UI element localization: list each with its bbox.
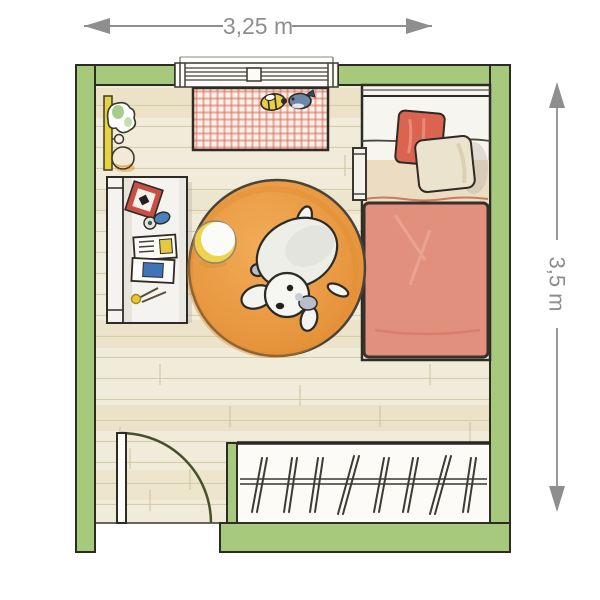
- dog-nose: [276, 303, 284, 309]
- wall-right: [490, 65, 510, 552]
- dog-eye: [287, 285, 293, 291]
- wall-left: [76, 65, 95, 552]
- desk: [107, 177, 192, 323]
- closet: [237, 443, 490, 523]
- window: [175, 57, 338, 87]
- wall-bottom: [220, 523, 510, 552]
- right-dimension: 3,5 m: [545, 82, 570, 512]
- bed: [353, 85, 490, 360]
- blanket: [364, 203, 488, 357]
- arrow-right-icon: [406, 18, 432, 34]
- play-rug: [193, 88, 328, 150]
- window-latch: [247, 68, 261, 81]
- wall-top-right: [338, 65, 510, 85]
- floor-plan-page: 3,25 m 3,5 m: [0, 0, 600, 600]
- arrow-left-icon: [84, 18, 110, 34]
- height-dimension-label: 3,5 m: [545, 256, 570, 311]
- open-book: [131, 235, 176, 284]
- pillow-cream: [414, 135, 475, 193]
- arrow-up-icon: [549, 82, 565, 108]
- door-leaf: [117, 433, 126, 523]
- closet-wall-stub: [227, 443, 237, 523]
- width-dimension-label: 3,25 m: [223, 13, 293, 39]
- bedside-rack: [353, 148, 366, 200]
- top-dimension: 3,25 m: [84, 13, 432, 39]
- dog-spot: [295, 293, 303, 301]
- floor-plan-canvas: 3,25 m 3,5 m: [0, 0, 600, 600]
- toy-round-orange: [112, 147, 135, 172]
- arrow-down-icon: [549, 486, 565, 512]
